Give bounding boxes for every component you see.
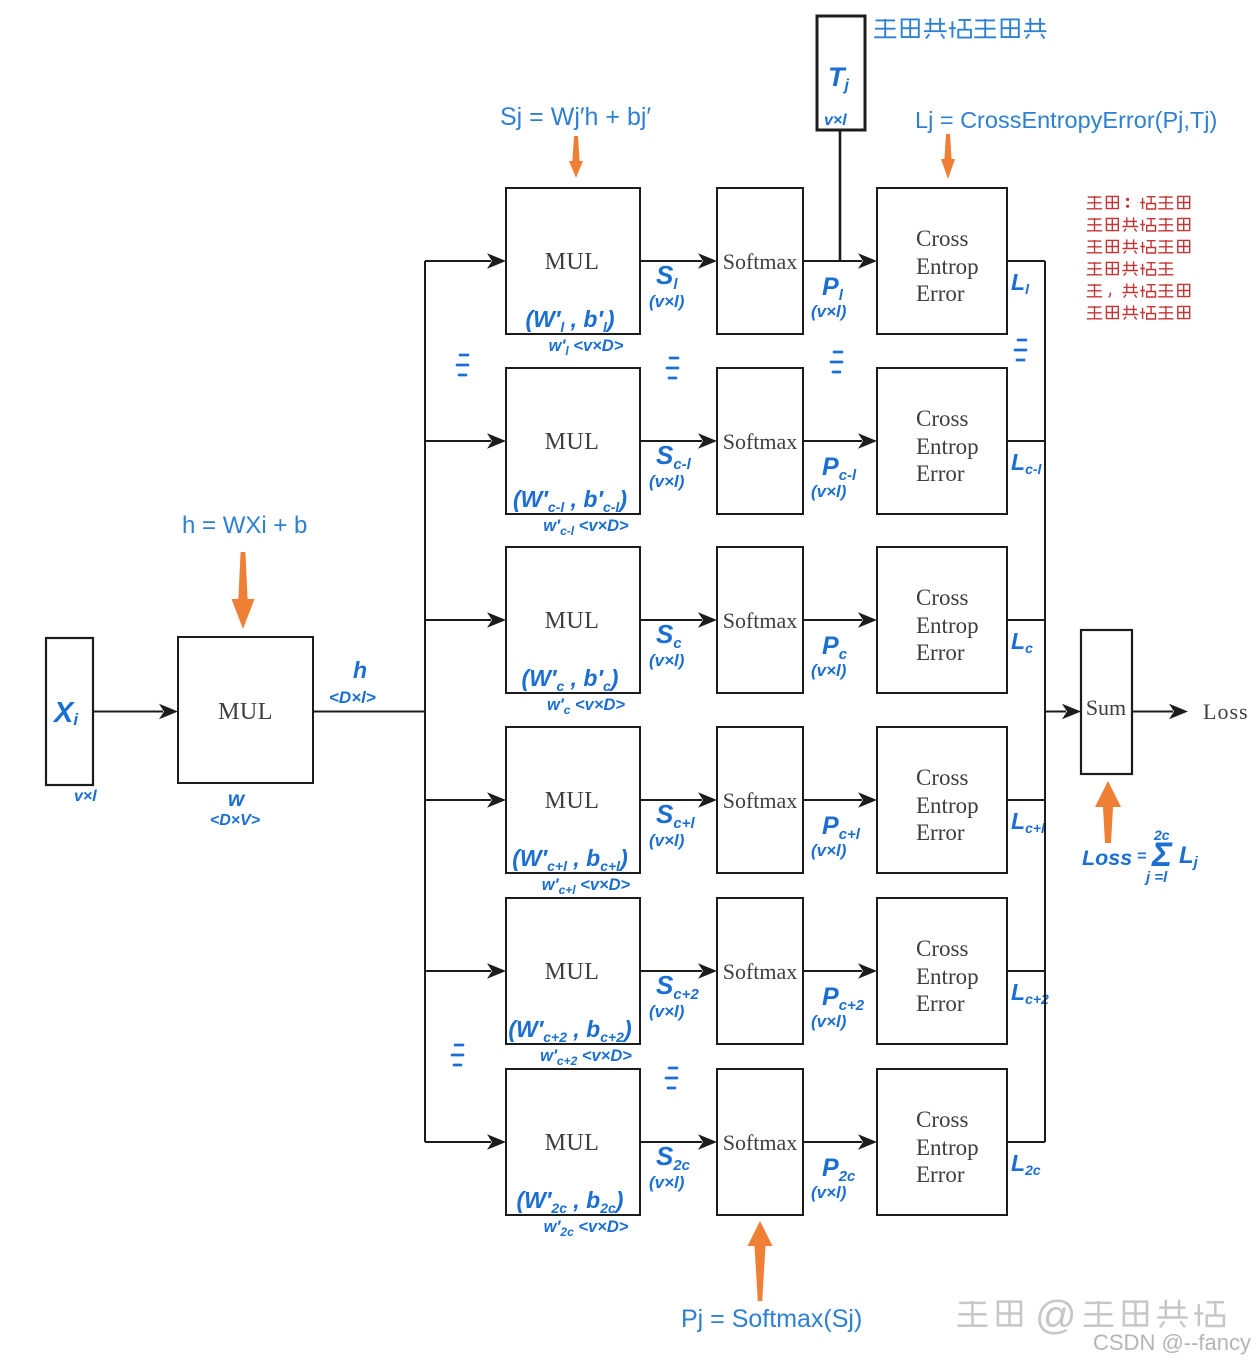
svg-text:h = WXi + b: h = WXi + b — [182, 512, 307, 539]
svg-text:Entrop: Entrop — [916, 964, 979, 989]
svg-text:w′c-l <v×D>: w′c-l <v×D> — [543, 517, 629, 538]
svg-text:Softmax: Softmax — [723, 249, 798, 274]
svg-text:Softmax: Softmax — [723, 959, 798, 984]
svg-text:Loss: Loss — [1082, 846, 1132, 870]
svg-text:Cross: Cross — [916, 765, 968, 790]
svg-text:(v×l): (v×l) — [811, 482, 847, 501]
svg-text:(v×l): (v×l) — [649, 1002, 685, 1021]
svg-text:MUL: MUL — [545, 608, 600, 634]
svg-text:w′l <v×D>: w′l <v×D> — [549, 337, 624, 358]
svg-text:Softmax: Softmax — [723, 1130, 798, 1155]
svg-text:Sum: Sum — [1086, 695, 1126, 720]
svg-text:Entrop: Entrop — [916, 434, 979, 459]
svg-text:Lj = CrossEntropyError(Pj,Tj): Lj = CrossEntropyError(Pj,Tj) — [915, 107, 1217, 133]
svg-text:(v×l): (v×l) — [811, 661, 847, 680]
svg-text:v×l: v×l — [74, 788, 97, 805]
svg-text:w′c+l <v×D>: w′c+l <v×D> — [542, 876, 631, 897]
svg-text:(v×l): (v×l) — [649, 472, 685, 491]
svg-text:@: @ — [1035, 1292, 1077, 1338]
svg-text:=: = — [1137, 848, 1146, 865]
svg-text:CSDN @--fancy: CSDN @--fancy — [1093, 1330, 1251, 1355]
svg-text:(v×l): (v×l) — [649, 1173, 685, 1192]
svg-text:Error: Error — [916, 820, 965, 845]
svg-text:Cross: Cross — [916, 1107, 968, 1132]
svg-text:(v×l): (v×l) — [649, 651, 685, 670]
svg-text:Error: Error — [916, 640, 965, 665]
svg-text:(W′l , b′l): (W′l , b′l) — [525, 306, 614, 335]
svg-text:<D×V>: <D×V> — [210, 812, 260, 829]
svg-text:MUL: MUL — [545, 429, 600, 455]
svg-text:(v×l): (v×l) — [811, 841, 847, 860]
svg-text:MUL: MUL — [545, 249, 600, 275]
svg-text:v×l: v×l — [824, 112, 847, 129]
svg-text:Cross: Cross — [916, 406, 968, 431]
svg-text:Entrop: Entrop — [916, 1135, 979, 1160]
svg-text:w: w — [228, 788, 246, 811]
svg-text:Softmax: Softmax — [723, 788, 798, 813]
svg-text:Cross: Cross — [916, 936, 968, 961]
svg-text:<D×l>: <D×l> — [329, 688, 376, 707]
svg-text:Entrop: Entrop — [916, 254, 979, 279]
svg-text:w′2c <v×D>: w′2c <v×D> — [544, 1218, 629, 1239]
svg-text:w′c <v×D>: w′c <v×D> — [547, 696, 625, 717]
svg-text:Softmax: Softmax — [723, 429, 798, 454]
svg-text:Entrop: Entrop — [916, 793, 979, 818]
svg-text:MUL: MUL — [545, 1130, 600, 1156]
svg-text:(v×l): (v×l) — [811, 302, 847, 321]
svg-text:Sj = Wj′h + bj′: Sj = Wj′h + bj′ — [500, 103, 651, 131]
svg-text:Error: Error — [916, 991, 965, 1016]
svg-text:Cross: Cross — [916, 226, 968, 251]
svg-text:Error: Error — [916, 281, 965, 306]
svg-text:Error: Error — [916, 461, 965, 486]
svg-text:MUL: MUL — [545, 959, 600, 985]
svg-text:(v×l): (v×l) — [649, 831, 685, 850]
svg-text:Entrop: Entrop — [916, 613, 979, 638]
svg-text:MUL: MUL — [545, 788, 600, 814]
svg-text:Loss: Loss — [1203, 699, 1249, 724]
svg-text:Error: Error — [916, 1162, 965, 1187]
svg-text:MUL: MUL — [218, 699, 273, 725]
svg-text:(v×l): (v×l) — [811, 1183, 847, 1202]
svg-text:(v×l): (v×l) — [649, 292, 685, 311]
svg-text:(v×l): (v×l) — [811, 1012, 847, 1031]
svg-text:Cross: Cross — [916, 585, 968, 610]
svg-text:h: h — [353, 657, 367, 683]
svg-text:2c: 2c — [1153, 827, 1170, 843]
svg-text:Pj = Softmax(Sj): Pj = Softmax(Sj) — [681, 1305, 862, 1333]
svg-text:Softmax: Softmax — [723, 608, 798, 633]
svg-text:j =l: j =l — [1144, 869, 1168, 886]
svg-text:w′c+2 <v×D>: w′c+2 <v×D> — [540, 1047, 632, 1068]
